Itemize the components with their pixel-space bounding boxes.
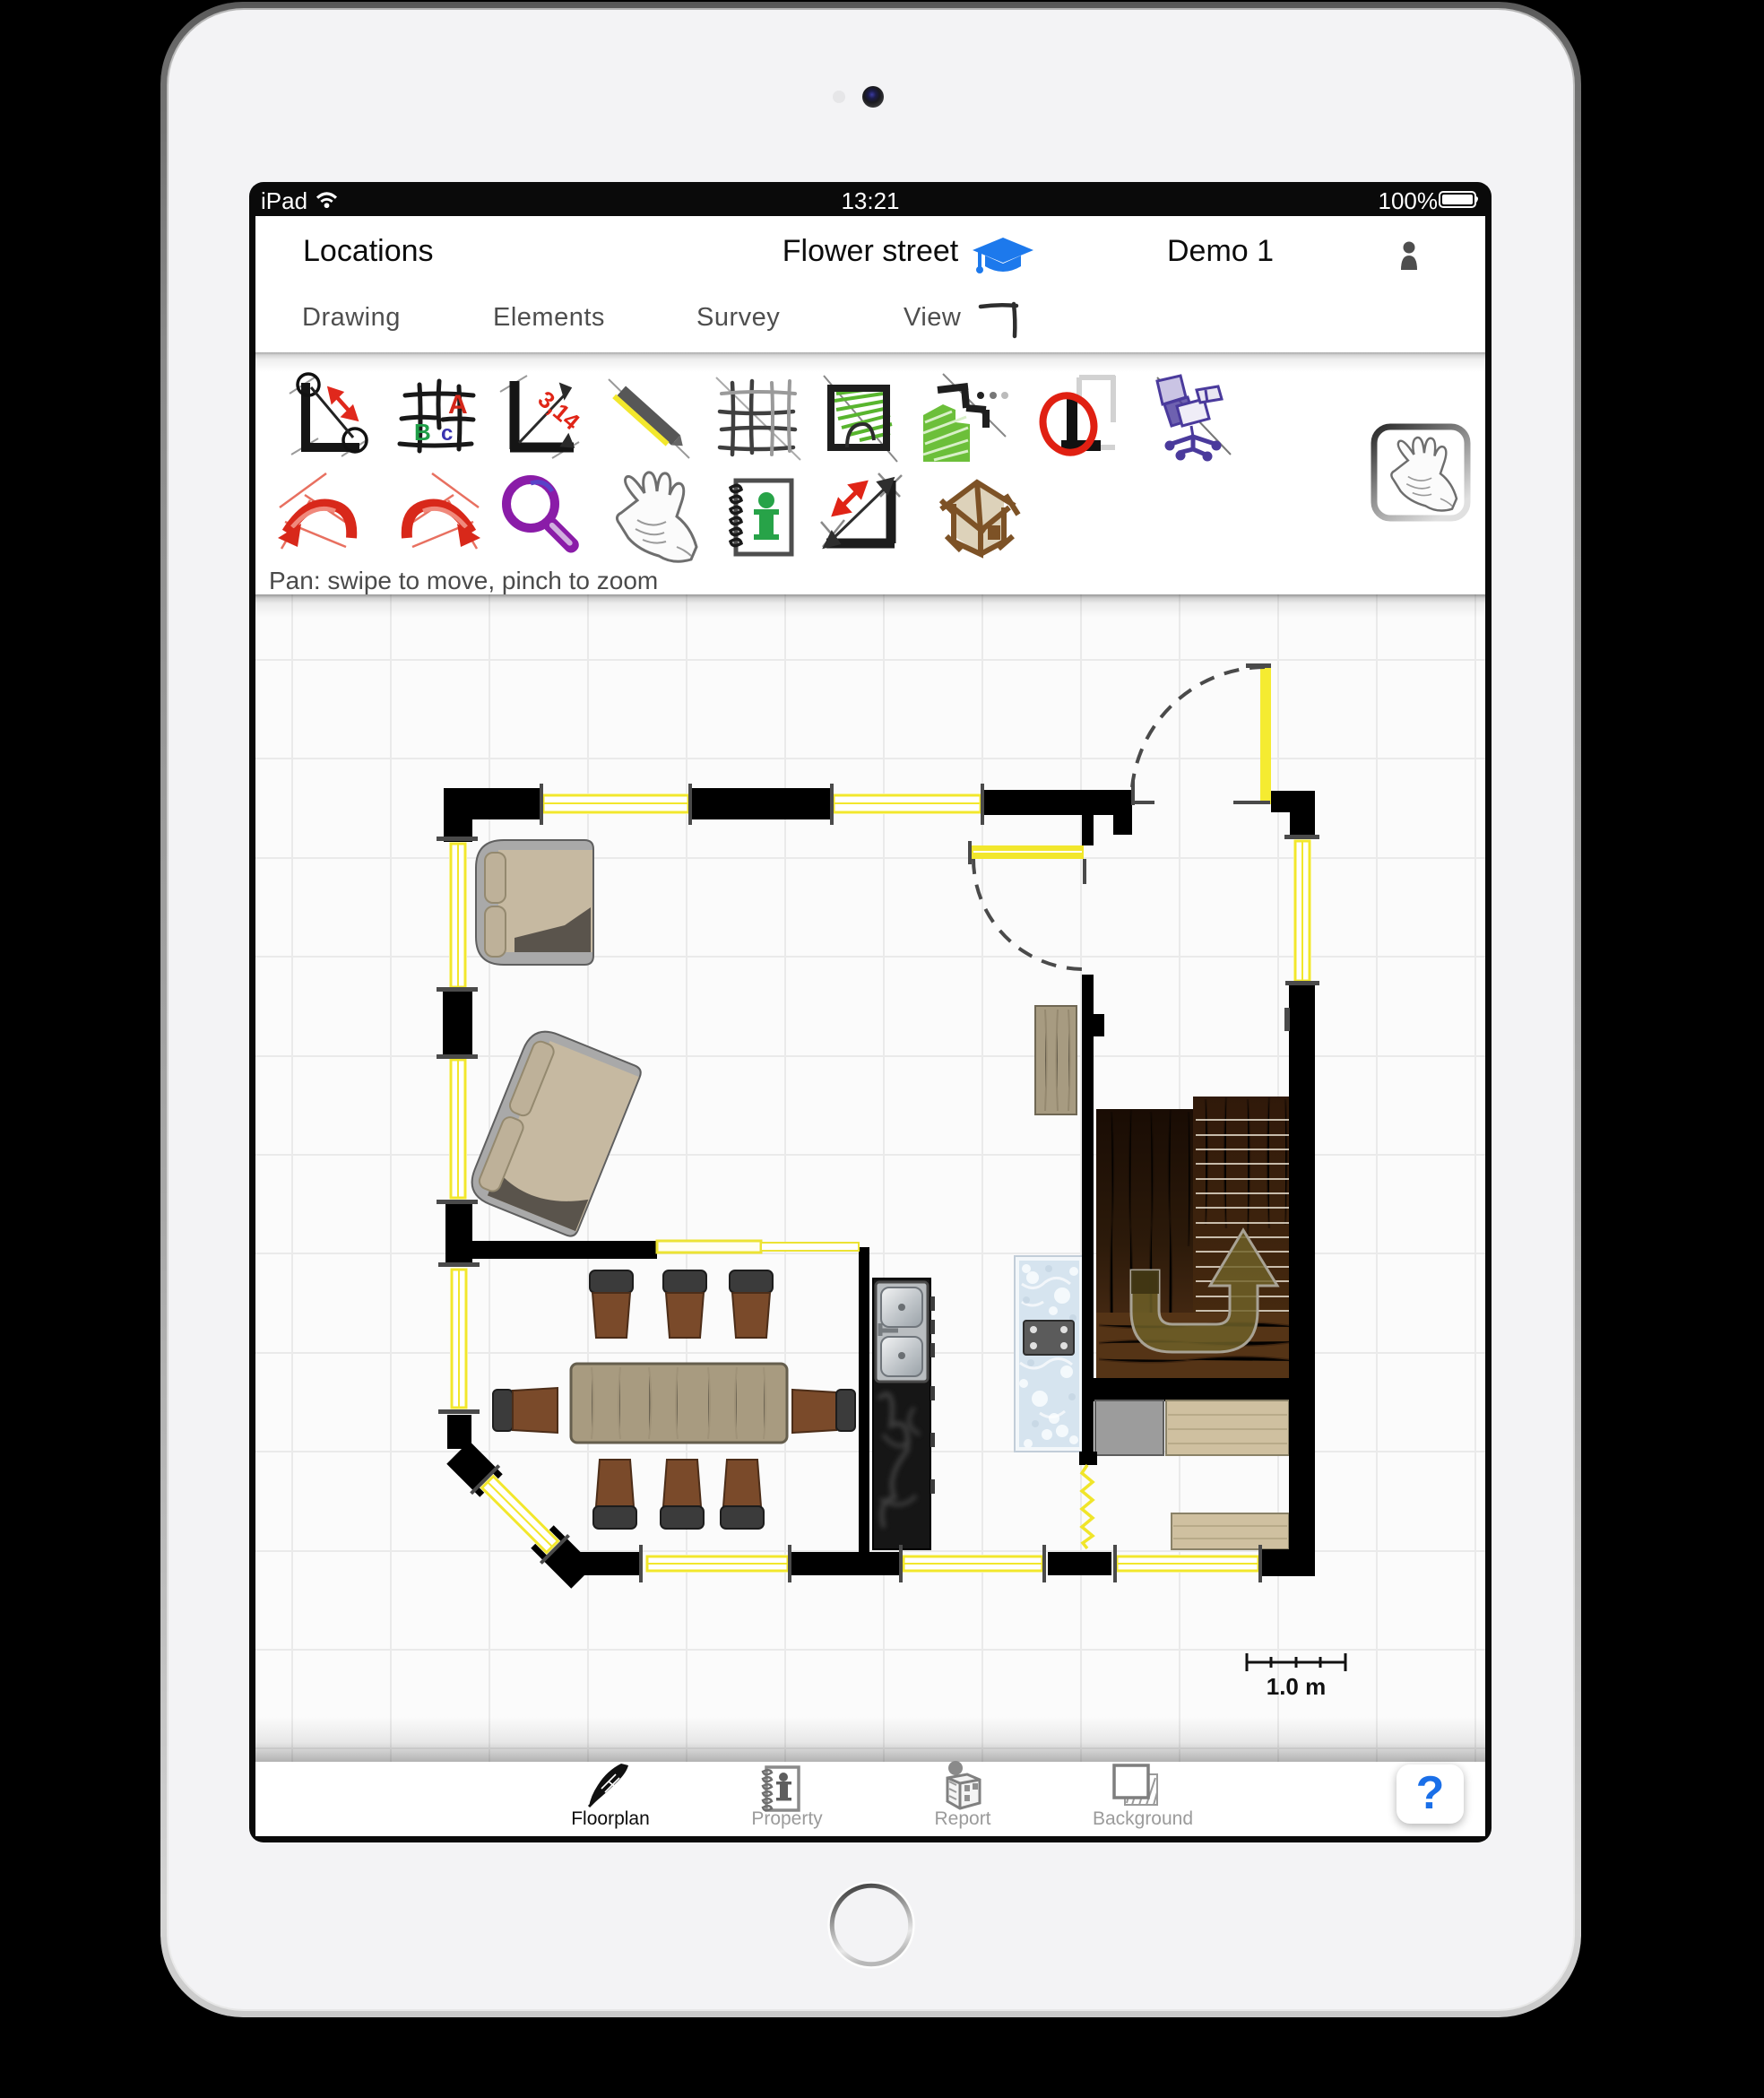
svg-text:A: A xyxy=(448,390,468,420)
svg-text:1.0 m: 1.0 m xyxy=(1267,1673,1327,1700)
svg-text:c: c xyxy=(441,421,453,446)
svg-text:3,14: 3,14 xyxy=(533,386,585,436)
svg-text:B: B xyxy=(414,419,431,446)
